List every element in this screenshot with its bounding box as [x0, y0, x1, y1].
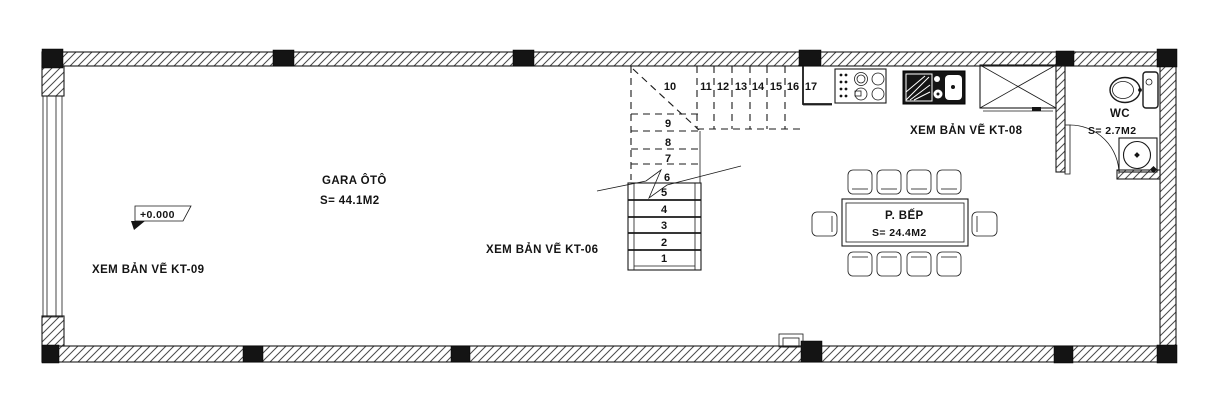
left-wall-upper	[42, 66, 64, 96]
step-number: 1	[661, 253, 667, 265]
exterior-walls	[42, 52, 1176, 362]
column	[513, 50, 534, 66]
step-number: 10	[664, 81, 676, 93]
chair	[877, 170, 901, 194]
step-number: 7	[665, 153, 671, 165]
left-wall-lower	[42, 316, 64, 346]
column	[801, 341, 822, 362]
garage-door	[43, 96, 63, 317]
see-drawing-kt06-label: XEM BẢN VẼ KT-06	[486, 243, 598, 256]
garage-area-label: S= 44.1M2	[320, 195, 380, 207]
chair	[812, 212, 837, 236]
garage-room-label: GARA ÔTÔ	[322, 174, 387, 187]
chair	[848, 170, 872, 194]
threshold-step	[779, 334, 803, 347]
wc-left-wall	[1056, 66, 1065, 172]
chair	[848, 252, 872, 276]
column	[799, 50, 821, 66]
kitchen-area-label: S= 24.4M2	[872, 227, 927, 239]
cooktop-icon	[835, 69, 886, 103]
column	[1054, 346, 1073, 363]
bottom-wall	[42, 346, 1176, 362]
step-number: 15	[770, 81, 782, 93]
cooktop-control-dots	[840, 74, 848, 98]
right-wall	[1160, 52, 1176, 362]
step-number: 9	[665, 118, 671, 130]
column	[1157, 345, 1177, 363]
see-drawing-kt08-label: XEM BẢN VẼ KT-08	[910, 124, 1023, 137]
chair	[972, 212, 997, 236]
dining-set: P. BẾP S= 24.4M2	[812, 170, 997, 276]
top-wall	[42, 52, 1176, 66]
elevation-value: +0.000	[140, 209, 175, 221]
step-number: 11	[700, 81, 712, 93]
washbasin-icon	[1119, 138, 1157, 173]
counter-crossed-box	[980, 65, 1056, 111]
step-number: 2	[661, 237, 667, 249]
chair	[937, 252, 961, 276]
step-number: 4	[661, 204, 668, 216]
chair	[877, 252, 901, 276]
step-number: 16	[787, 81, 799, 93]
elevation-marker: +0.000	[131, 206, 191, 230]
column	[42, 345, 59, 363]
chair	[907, 170, 931, 194]
wc-room-label: WC	[1110, 108, 1130, 120]
toilet-icon	[1110, 72, 1158, 108]
step-number: 3	[661, 220, 667, 232]
step-number: 14	[752, 81, 765, 93]
column	[1157, 49, 1177, 67]
floor-plan-canvas: 1 2 3 4 5 6 7 8 9 10 11 12 13 14 15 16 1…	[0, 0, 1221, 415]
column	[1056, 51, 1074, 66]
step-number: 6	[664, 172, 670, 184]
chair	[907, 252, 931, 276]
staircase: 1 2 3 4 5 6 7 8 9 10 11 12 13 14 15 16 1…	[597, 66, 832, 270]
column	[273, 50, 294, 66]
step-number: 5	[661, 187, 667, 199]
step-number: 8	[665, 137, 671, 149]
wc-area-label: S= 2.7M2	[1088, 125, 1136, 137]
column	[243, 346, 263, 362]
structural-columns	[42, 49, 1177, 363]
step-number: 17	[805, 81, 817, 93]
column	[42, 49, 63, 68]
wc-room: WC S= 2.7M2	[1056, 66, 1160, 179]
step-number: 13	[735, 81, 747, 93]
kitchen-room-label: P. BẾP	[885, 209, 924, 222]
column	[451, 346, 470, 362]
step-number: 12	[717, 81, 729, 93]
floor-plan-drawing: 1 2 3 4 5 6 7 8 9 10 11 12 13 14 15 16 1…	[0, 0, 1221, 415]
chair	[937, 170, 961, 194]
kitchen-sink-icon	[903, 71, 965, 104]
stair-step-numbers: 1 2 3 4 5 6 7 8 9 10 11 12 13 14 15 16 1…	[661, 81, 817, 265]
kitchen-fixtures	[803, 65, 1056, 111]
see-drawing-kt09-label: XEM BẢN VẼ KT-09	[92, 263, 204, 276]
stair-upper-flight	[697, 66, 800, 129]
dining-chairs	[812, 170, 997, 276]
